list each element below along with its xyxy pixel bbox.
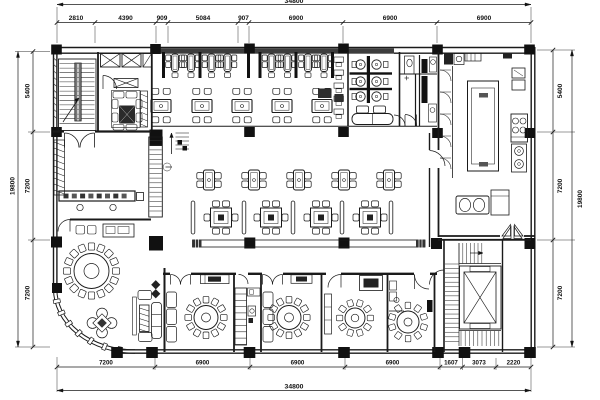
svg-text:6900: 6900 — [477, 15, 492, 22]
svg-text:7200: 7200 — [557, 285, 564, 300]
svg-text:34800: 34800 — [285, 0, 304, 5]
svg-text:2220: 2220 — [507, 360, 521, 367]
svg-text:909: 909 — [157, 15, 168, 22]
svg-text:7200: 7200 — [25, 178, 32, 193]
svg-text:19800: 19800 — [577, 190, 584, 208]
svg-text:7200: 7200 — [557, 178, 564, 193]
svg-text:6900: 6900 — [289, 15, 304, 22]
svg-text:3073: 3073 — [472, 360, 486, 367]
svg-text:7200: 7200 — [25, 285, 32, 300]
svg-text:1607: 1607 — [444, 360, 458, 367]
svg-text:19800: 19800 — [10, 177, 17, 195]
svg-text:4390: 4390 — [118, 15, 133, 22]
svg-text:6900: 6900 — [196, 360, 210, 367]
svg-text:5400: 5400 — [557, 83, 564, 98]
svg-text:6900: 6900 — [291, 360, 305, 367]
svg-text:6900: 6900 — [386, 360, 400, 367]
svg-text:34800: 34800 — [285, 384, 304, 391]
svg-text:7200: 7200 — [99, 360, 113, 367]
svg-text:5400: 5400 — [25, 83, 32, 98]
svg-text:6900: 6900 — [383, 15, 398, 22]
svg-text:5084: 5084 — [196, 15, 211, 22]
svg-text:907: 907 — [238, 15, 249, 22]
svg-text:2810: 2810 — [69, 15, 84, 22]
